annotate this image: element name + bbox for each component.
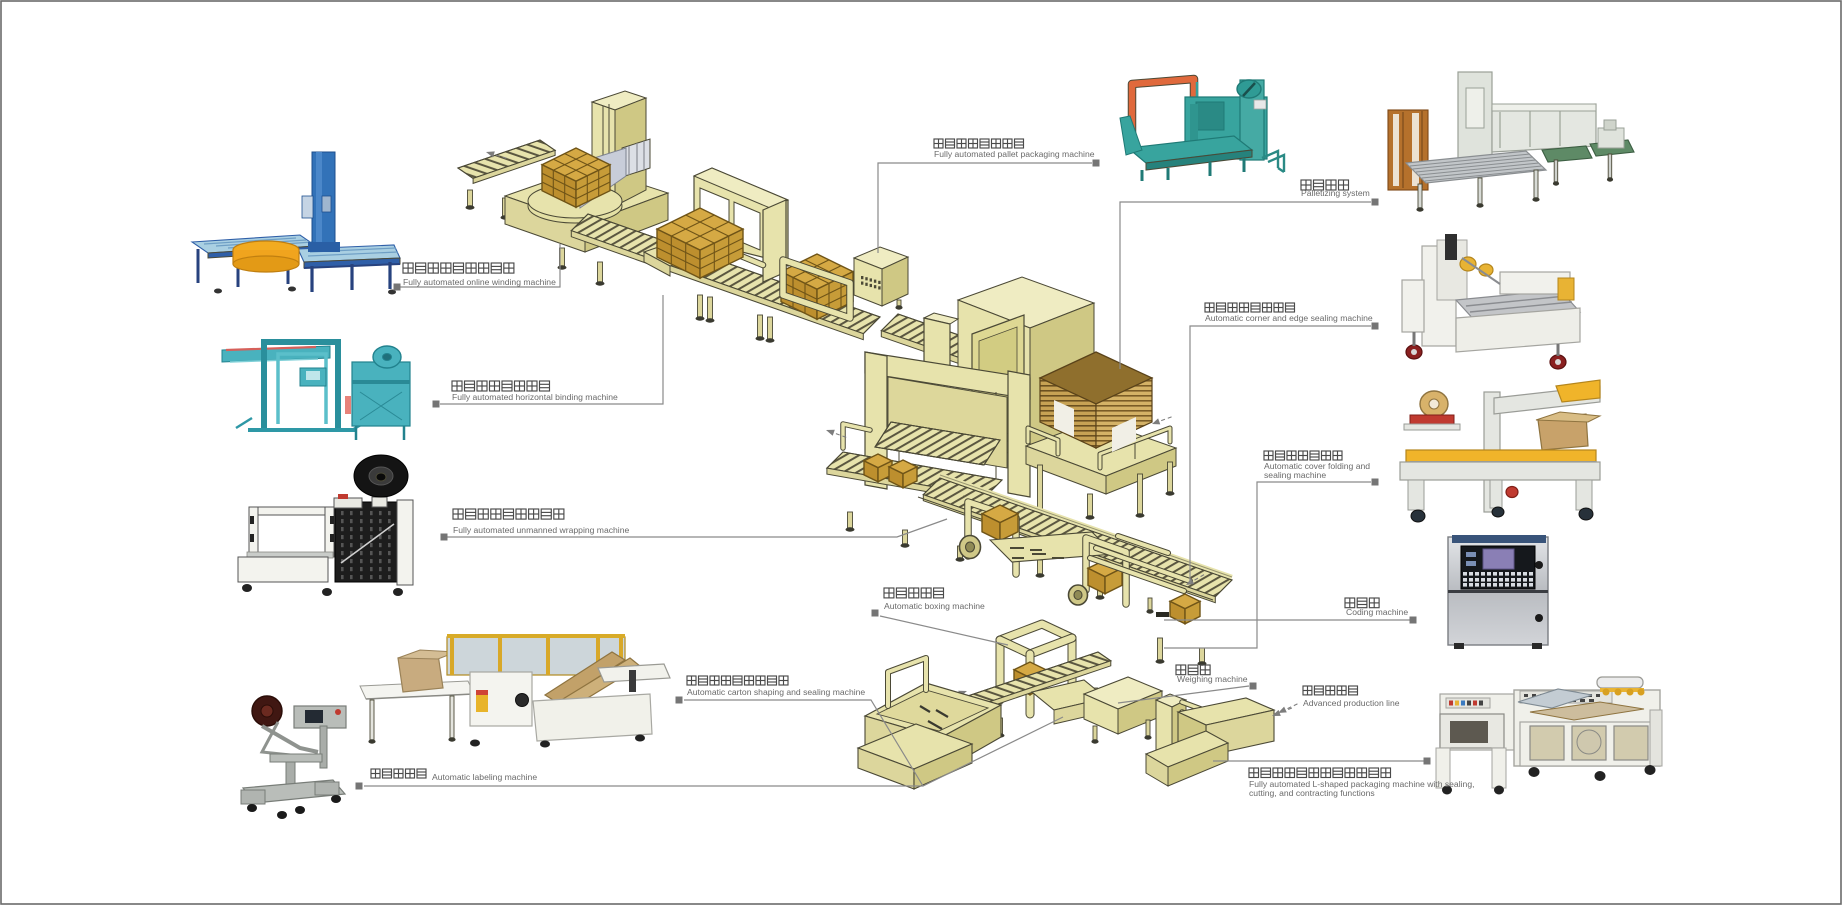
svg-text:Fully automated pallet packagi: Fully automated pallet packaging machine [934,149,1095,159]
svg-text:Palletizing system: Palletizing system [1301,188,1370,198]
svg-text:Automatic carton shaping and s: Automatic carton shaping and sealing mac… [687,687,865,697]
svg-text:Weighing machine: Weighing machine [1177,674,1248,684]
svg-text:Automatic corner and edge seal: Automatic corner and edge sealing machin… [1205,313,1373,323]
svg-text:Fully automated online winding: Fully automated online winding machine [403,277,556,287]
svg-text:Fully automated horizontal bin: Fully automated horizontal binding machi… [452,392,618,402]
svg-text:Advanced production line: Advanced production line [1303,698,1400,708]
svg-text:sealing machine: sealing machine [1264,470,1326,480]
svg-text:Automatic boxing machine: Automatic boxing machine [884,601,985,611]
svg-text:Automatic labeling machine: Automatic labeling machine [432,772,537,782]
svg-text:cutting, and contracting funct: cutting, and contracting functions [1249,788,1375,798]
svg-text:Fully automated unmanned wrapp: Fully automated unmanned wrapping machin… [453,525,629,535]
svg-text:Coding machine: Coding machine [1346,607,1408,617]
